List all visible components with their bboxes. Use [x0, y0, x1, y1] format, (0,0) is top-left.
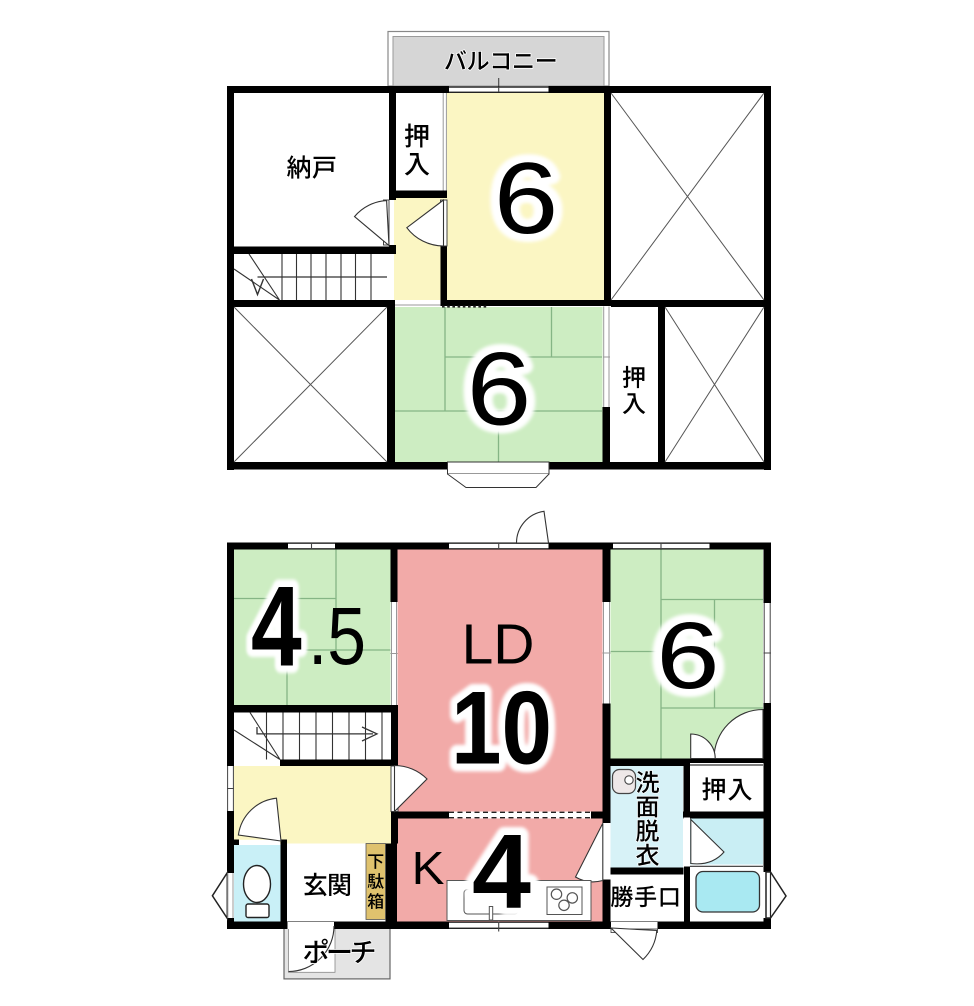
svg-text:.5: .5: [308, 591, 366, 683]
svg-text:6: 6: [494, 142, 559, 255]
svg-text:6: 6: [656, 603, 719, 709]
svg-text:K: K: [412, 843, 445, 894]
svg-text:10: 10: [451, 671, 552, 787]
svg-text:6: 6: [467, 331, 532, 447]
svg-text:4: 4: [472, 813, 531, 931]
svg-text:4: 4: [251, 563, 302, 690]
svg-text:LD: LD: [462, 612, 535, 676]
